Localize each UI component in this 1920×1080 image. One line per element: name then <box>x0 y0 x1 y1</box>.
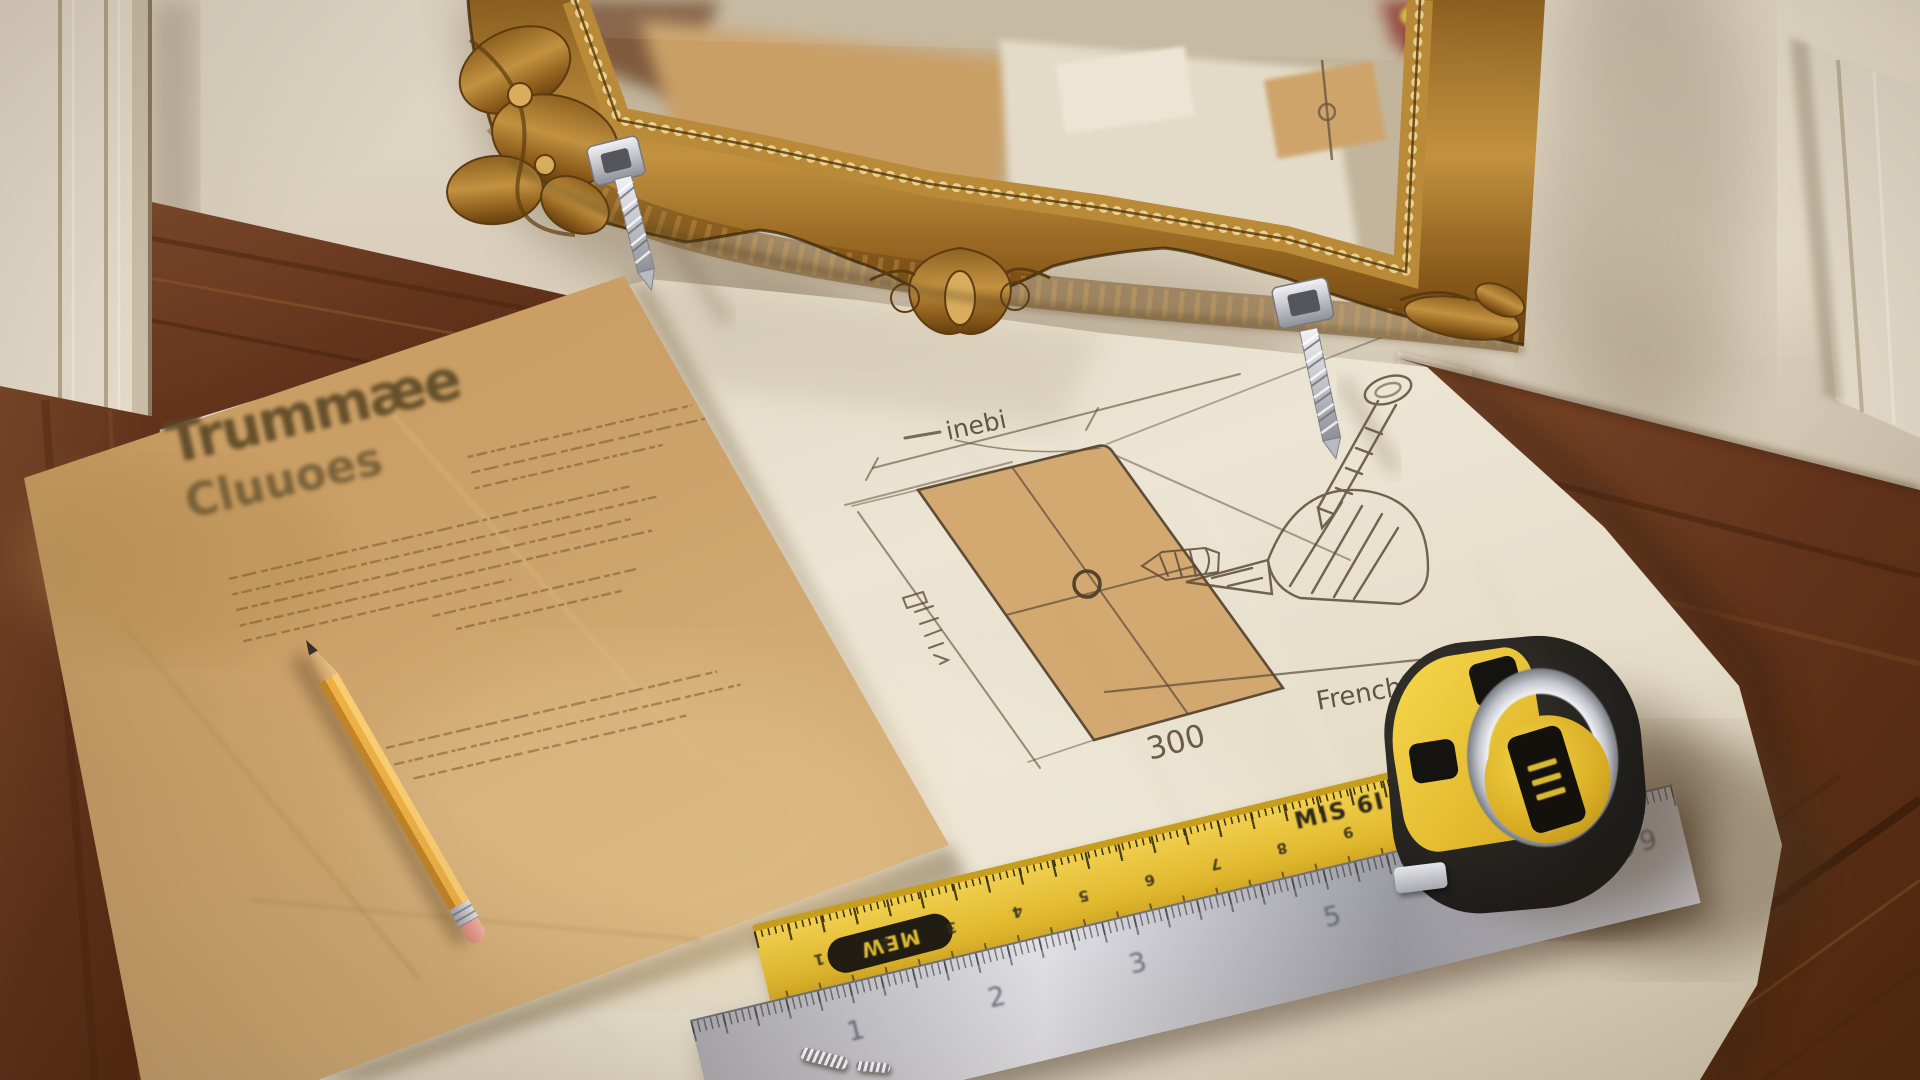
ruler-number: 6 <box>1143 870 1157 890</box>
ruler-number: 3 <box>1126 946 1150 980</box>
ruler-number: 5 <box>1320 900 1344 934</box>
ruler-number: 1 <box>844 1014 868 1048</box>
ruler-number: 4 <box>1010 902 1024 922</box>
ruler-number: 9 <box>1341 822 1355 842</box>
ruler-number: 1 <box>812 949 826 969</box>
ruler-number: 5 <box>1076 886 1090 906</box>
ruler-number: 2 <box>985 980 1009 1014</box>
yellow-ruler-brand: MIS 6I <box>1292 788 1388 835</box>
ruler-number: 8 <box>1275 838 1289 858</box>
tape-measure <box>1377 627 1656 920</box>
ruler-number: 7 <box>1209 854 1223 874</box>
workspace-scene: inebi 300 FrenchLrt COw Trummæe Cluuoes <box>0 0 1920 1080</box>
